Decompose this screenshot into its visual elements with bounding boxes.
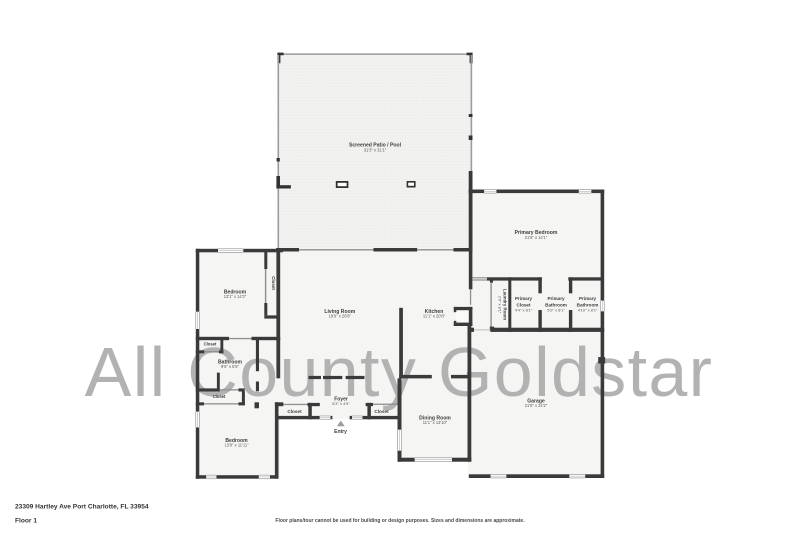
svg-text:Primary: Primary bbox=[579, 296, 597, 301]
svg-text:Closet: Closet bbox=[374, 409, 389, 414]
svg-text:Closet: Closet bbox=[204, 342, 217, 347]
svg-text:4'10" x 8'1": 4'10" x 8'1" bbox=[578, 308, 598, 313]
svg-text:Closet: Closet bbox=[271, 276, 276, 290]
svg-text:11'1" x 20'8": 11'1" x 20'8" bbox=[423, 314, 446, 319]
svg-text:9'6" x 8'5": 9'6" x 8'5" bbox=[221, 364, 239, 369]
svg-text:31'3" x 31'1": 31'3" x 31'1" bbox=[364, 147, 387, 152]
svg-text:13'9" x 11'11": 13'9" x 11'11" bbox=[224, 443, 249, 448]
svg-text:Primary: Primary bbox=[547, 296, 565, 301]
svg-text:21'8" x 24'2": 21'8" x 24'2" bbox=[525, 403, 548, 408]
svg-text:19'9" x 26'8": 19'9" x 26'8" bbox=[329, 314, 352, 319]
svg-text:Closet: Closet bbox=[287, 409, 302, 414]
svg-text:8'3" x 4'5": 8'3" x 4'5" bbox=[332, 401, 350, 406]
svg-text:23309 Hartley Ave Port Charlot: 23309 Hartley Ave Port Charlotte, FL 339… bbox=[15, 504, 149, 511]
svg-text:4'4" x 8'1": 4'4" x 8'1" bbox=[515, 308, 533, 313]
svg-text:2'6" x 8'1": 2'6" x 8'1" bbox=[498, 296, 503, 314]
svg-text:Closet: Closet bbox=[213, 394, 226, 399]
svg-text:13'1" x 14'2": 13'1" x 14'2" bbox=[224, 294, 247, 299]
svg-text:Primary: Primary bbox=[515, 296, 533, 301]
svg-text:21'8" x 14'1": 21'8" x 14'1" bbox=[525, 235, 548, 240]
svg-text:11'1" x 13'10": 11'1" x 13'10" bbox=[423, 420, 448, 425]
svg-text:Floor 1: Floor 1 bbox=[15, 517, 37, 524]
svg-text:5'9" x 8'1": 5'9" x 8'1" bbox=[547, 308, 565, 313]
svg-text:Entry: Entry bbox=[334, 429, 347, 435]
svg-text:Floor plans/tour cannot be use: Floor plans/tour cannot be used for buil… bbox=[275, 518, 525, 524]
